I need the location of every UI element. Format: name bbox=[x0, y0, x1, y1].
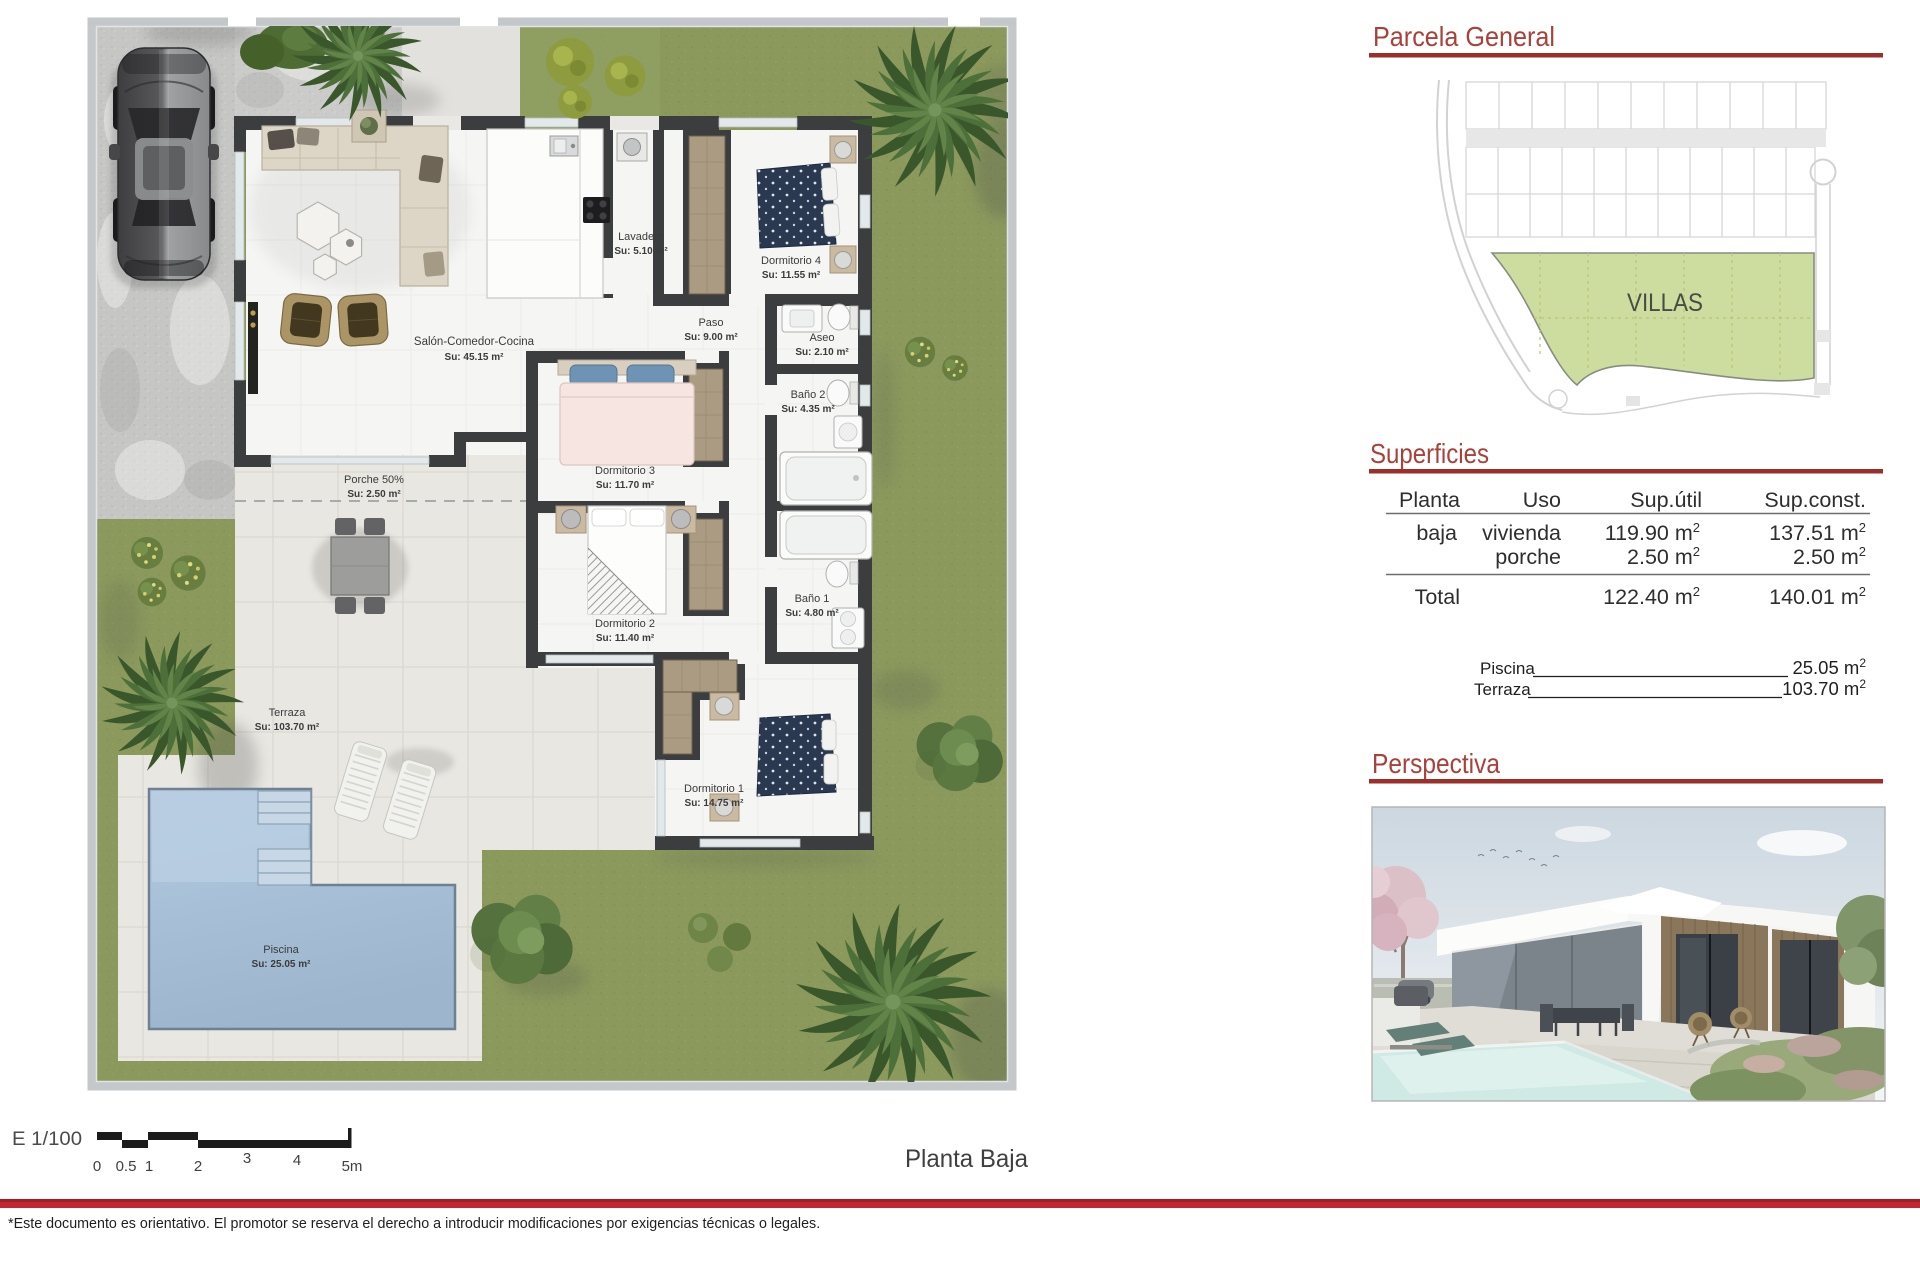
svg-text:Terraza: Terraza bbox=[269, 707, 307, 719]
svg-text:1: 1 bbox=[145, 1158, 153, 1175]
svg-text:Su: 103.70 m²: Su: 103.70 m² bbox=[255, 722, 320, 733]
svg-text:Dormitorio 1: Dormitorio 1 bbox=[684, 783, 744, 795]
svg-text:Su: 4.35 m²: Su: 4.35 m² bbox=[781, 404, 835, 415]
svg-text:Su: 11.55 m²: Su: 11.55 m² bbox=[762, 270, 821, 281]
svg-text:VILLAS: VILLAS bbox=[1627, 289, 1703, 317]
svg-text:5m: 5m bbox=[342, 1158, 363, 1175]
svg-text:Planta: Planta bbox=[1399, 488, 1460, 512]
svg-text:Su: 45.15 m²: Su: 45.15 m² bbox=[445, 352, 505, 363]
svg-text:Su: 25.05 m²: Su: 25.05 m² bbox=[252, 959, 312, 970]
svg-text:Dormitorio 4: Dormitorio 4 bbox=[761, 255, 821, 267]
svg-text:Piscina: Piscina bbox=[1480, 659, 1535, 678]
svg-text:Baño 2: Baño 2 bbox=[791, 389, 826, 401]
svg-text:119.90 m2: 119.90 m2 bbox=[1605, 520, 1700, 545]
svg-text:Su: 11.70 m²: Su: 11.70 m² bbox=[596, 480, 655, 491]
svg-text:Dormitorio 2: Dormitorio 2 bbox=[595, 618, 655, 630]
svg-text:porche: porche bbox=[1495, 545, 1561, 569]
svg-text:103.70 m2: 103.70 m2 bbox=[1782, 677, 1866, 699]
svg-text:Aseo: Aseo bbox=[809, 332, 834, 344]
svg-text:Su: 9.00 m²: Su: 9.00 m² bbox=[684, 332, 738, 343]
svg-text:2: 2 bbox=[194, 1158, 202, 1175]
svg-text:137.51 m2: 137.51 m2 bbox=[1769, 520, 1866, 545]
svg-text:vivienda: vivienda bbox=[1482, 521, 1561, 545]
svg-text:0.5: 0.5 bbox=[116, 1158, 137, 1175]
svg-text:E 1/100: E 1/100 bbox=[12, 1129, 82, 1150]
svg-text:Perspectiva: Perspectiva bbox=[1372, 748, 1500, 779]
svg-text:3: 3 bbox=[243, 1150, 251, 1167]
svg-text:Sup.const.: Sup.const. bbox=[1764, 488, 1866, 512]
svg-text:Superficies: Superficies bbox=[1370, 438, 1489, 469]
svg-text:Parcela General: Parcela General bbox=[1373, 21, 1555, 52]
svg-text:Sup.útil: Sup.útil bbox=[1630, 488, 1702, 512]
svg-text:Total: Total bbox=[1415, 585, 1460, 609]
svg-text:Su: 5.10 m²: Su: 5.10 m² bbox=[614, 246, 668, 257]
svg-text:Paso: Paso bbox=[698, 317, 723, 329]
svg-text:2.50 m2: 2.50 m2 bbox=[1627, 544, 1700, 569]
svg-text:2.50 m2: 2.50 m2 bbox=[1793, 544, 1866, 569]
svg-text:122.40 m2: 122.40 m2 bbox=[1603, 584, 1700, 609]
svg-text:0: 0 bbox=[93, 1158, 101, 1175]
svg-text:Dormitorio 3: Dormitorio 3 bbox=[595, 465, 655, 477]
svg-text:Baño 1: Baño 1 bbox=[795, 593, 830, 605]
svg-text:Planta Baja: Planta Baja bbox=[905, 1145, 1028, 1173]
svg-text:Su: 14.75 m²: Su: 14.75 m² bbox=[685, 798, 745, 809]
svg-text:4: 4 bbox=[293, 1152, 301, 1169]
svg-text:Terraza: Terraza bbox=[1474, 680, 1531, 699]
svg-text:Su: 2.10 m²: Su: 2.10 m² bbox=[795, 347, 849, 358]
svg-text:baja: baja bbox=[1416, 521, 1457, 545]
svg-text:Piscina: Piscina bbox=[263, 944, 299, 956]
svg-text:25.05 m2: 25.05 m2 bbox=[1792, 656, 1866, 678]
svg-text:140.01 m2: 140.01 m2 bbox=[1769, 584, 1866, 609]
svg-text:Porche 50%: Porche 50% bbox=[344, 474, 404, 486]
svg-text:Su: 2.50 m²: Su: 2.50 m² bbox=[347, 489, 401, 500]
svg-text:*Este documento es orientativo: *Este documento es orientativo. El promo… bbox=[8, 1216, 820, 1232]
svg-text:Su: 4.80 m²: Su: 4.80 m² bbox=[785, 608, 839, 619]
svg-text:Lavadero: Lavadero bbox=[618, 231, 664, 243]
svg-text:Uso: Uso bbox=[1523, 488, 1561, 512]
svg-text:Salón-Comedor-Cocina: Salón-Comedor-Cocina bbox=[414, 336, 535, 348]
svg-text:Su: 11.40 m²: Su: 11.40 m² bbox=[596, 633, 655, 644]
